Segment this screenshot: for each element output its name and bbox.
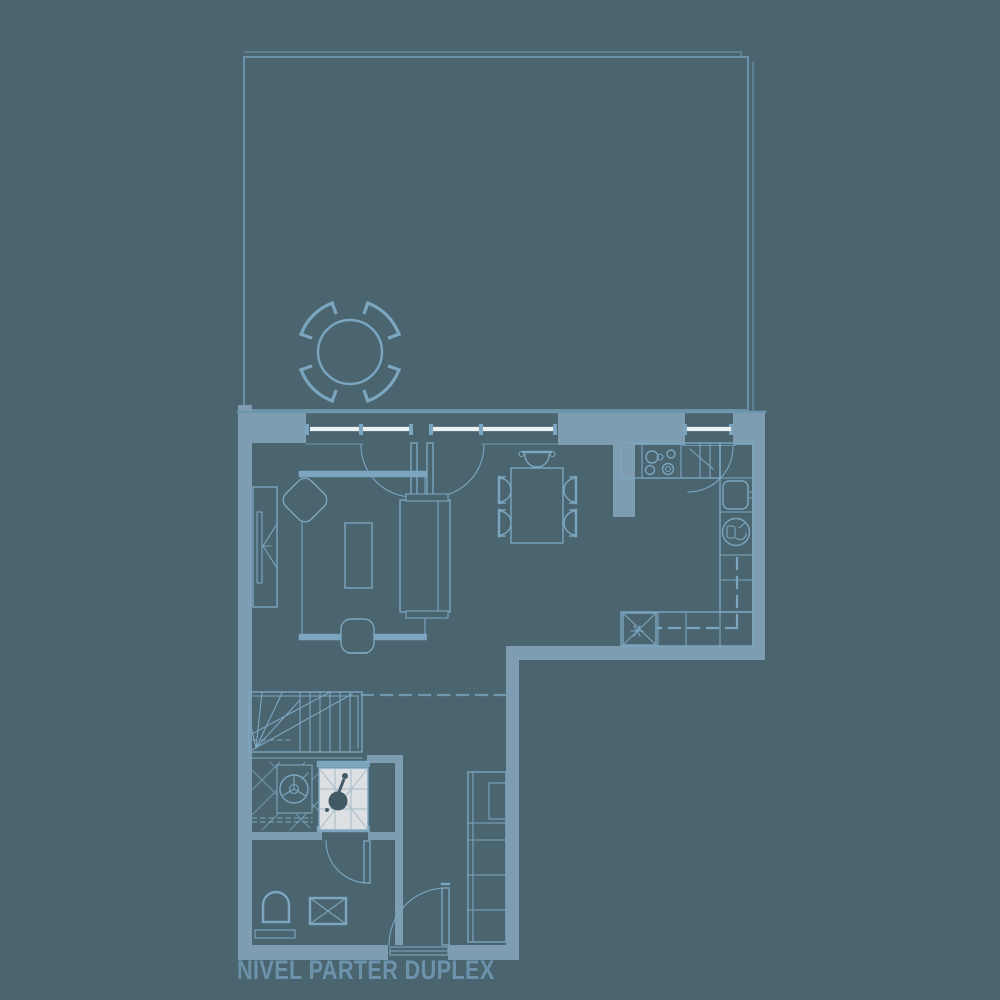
open-door-leaf-left: [411, 443, 417, 495]
wall-left: [238, 405, 252, 960]
dining-chair-top: [519, 452, 555, 468]
bathroom-door-swing: [326, 841, 368, 883]
bathroom-vanity: [310, 898, 346, 924]
wall-kitchen-bottom: [506, 646, 765, 660]
wall-step-vertical: [506, 646, 519, 960]
bathroom: [255, 841, 370, 938]
wall-kitchen-partition: [613, 443, 635, 517]
door-swing-right: [432, 445, 484, 497]
bathroom-door-leaf: [364, 841, 370, 883]
tv-mount-icon: [263, 524, 277, 568]
wall-top-mid: [558, 413, 685, 445]
tv-screen: [257, 512, 262, 583]
sofa-armrest-top: [406, 494, 448, 501]
refrigerator: [623, 613, 656, 645]
living-room: [253, 474, 450, 653]
washing-machine: [723, 519, 750, 546]
open-door-leaf-right: [427, 443, 433, 495]
wall-top-left: [238, 413, 306, 443]
closet-inner-box: [489, 783, 506, 819]
utility-area: [252, 762, 318, 830]
plan-title: NIVEL PARTER DUPLEX: [237, 955, 495, 986]
terrace: [244, 52, 753, 410]
dining-table: [511, 468, 563, 543]
terrace-round-table: [318, 320, 382, 384]
sofa-armrest-bottom: [406, 611, 448, 618]
dining-chairs-right: [564, 477, 576, 536]
stairs-outline: [249, 692, 362, 752]
kitchen-counter-top: [621, 443, 720, 478]
toilet: [263, 892, 289, 922]
winder-treads: [250, 692, 300, 748]
stairs: [249, 692, 362, 758]
closet-shelves: [468, 823, 506, 910]
kitchen: [621, 443, 754, 646]
wall-bath-partition-left: [250, 832, 322, 840]
kitchen-sink: [723, 481, 754, 509]
entry-threshold: [390, 947, 448, 955]
coffee-table: [345, 523, 372, 588]
tv-unit: [253, 487, 277, 607]
stair-treads: [300, 692, 350, 752]
entry-door-leaf: [442, 888, 449, 945]
wall-above-shower: [367, 755, 403, 763]
french-doors: [361, 429, 484, 497]
armchair: [280, 475, 331, 526]
hallway-closet: [468, 772, 506, 942]
bath-mat: [255, 930, 295, 938]
boiler: [277, 765, 312, 813]
upper-cabinets-dashed: [658, 558, 737, 628]
wall-right: [752, 413, 765, 660]
window-band: [238, 412, 765, 497]
shower: [319, 764, 368, 830]
bathroom-door: [326, 841, 370, 883]
floor-plan-drawing: [0, 0, 1000, 1000]
dining-area: [499, 452, 576, 544]
stair-direction-lines: [252, 692, 352, 750]
dining-chairs-left: [499, 477, 511, 536]
closet-outline: [468, 772, 506, 942]
counter-dividers-top: [642, 443, 710, 478]
sofa: [400, 494, 450, 618]
pouf: [341, 619, 374, 653]
floor-plan: NIVEL PARTER DUPLEX: [0, 0, 1000, 1000]
cooktop: [646, 450, 676, 475]
sofa-body: [400, 500, 450, 612]
